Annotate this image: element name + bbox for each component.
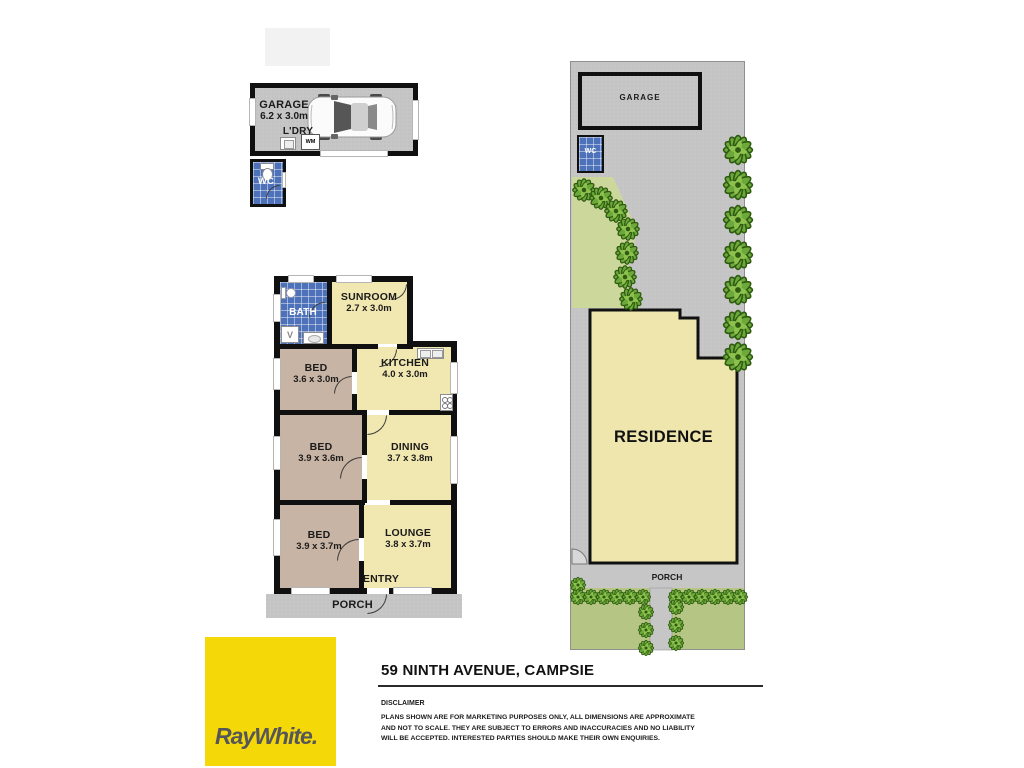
- wall: [352, 349, 357, 372]
- window: [273, 519, 281, 556]
- window: [393, 587, 432, 595]
- property-address: 59 NINTH AVENUE, CAMPSIE: [381, 662, 761, 679]
- porch-label: PORCH: [320, 599, 385, 611]
- sunroom-dims: 2.7 x 3.0m: [330, 303, 408, 314]
- wc-window-right: [282, 172, 286, 188]
- kitchen-name: KITCHEN: [360, 357, 450, 369]
- sunroom-name: SUNROOM: [330, 291, 408, 303]
- kitchen-label: KITCHEN 4.0 x 3.0m: [360, 357, 450, 380]
- laundry-tub-icon: [280, 137, 296, 150]
- wc-plan-label: WC: [251, 176, 281, 187]
- dining-dims: 3.7 x 3.8m: [370, 453, 450, 464]
- raywhite-logo: RayWhite.: [205, 637, 336, 766]
- wall: [390, 500, 451, 505]
- window: [291, 587, 330, 595]
- disclaimer-heading: DISCLAIMER: [381, 700, 581, 707]
- wall: [280, 344, 378, 349]
- site-porch-label: PORCH: [637, 572, 697, 582]
- site-wc-label: WC: [577, 148, 604, 155]
- wall: [280, 410, 367, 415]
- site-garage-label: GARAGE: [578, 93, 702, 102]
- garage-plan-dims: 6.2 x 3.0m: [250, 111, 318, 122]
- floorplan-page: WM GARAGE 6.2 x 3.0m L'DRY WC: [0, 0, 1024, 768]
- bed2-label: BED 3.9 x 3.6m: [284, 441, 358, 464]
- bed2-name: BED: [284, 441, 358, 453]
- garage-door-opening: [320, 150, 388, 157]
- dining-label: DINING 3.7 x 3.8m: [370, 441, 450, 464]
- window: [450, 436, 458, 484]
- wall: [407, 341, 457, 347]
- lounge-dims: 3.8 x 3.7m: [368, 539, 448, 550]
- wall: [359, 505, 364, 538]
- window: [450, 362, 458, 394]
- garage-plan-title: GARAGE: [252, 99, 316, 111]
- window: [336, 275, 372, 283]
- bath-toilet-bowl-icon: [286, 288, 296, 298]
- garage-window-right: [412, 100, 419, 140]
- faint-box: [265, 28, 330, 66]
- bath-sink-icon: [303, 332, 324, 344]
- wall: [280, 500, 365, 505]
- bed3-name: BED: [282, 529, 356, 541]
- raywhite-logo-text: RayWhite.: [215, 723, 317, 750]
- address-rule: [378, 685, 763, 687]
- wall: [397, 344, 413, 349]
- residence-label: RESIDENCE: [592, 428, 735, 447]
- bath-label: BATH: [281, 307, 325, 318]
- dining-name: DINING: [370, 441, 450, 453]
- lounge-name: LOUNGE: [368, 527, 448, 539]
- laundry-label: L'DRY: [278, 126, 318, 137]
- kitchen-dims: 4.0 x 3.0m: [360, 369, 450, 380]
- sunroom-label: SUNROOM 2.7 x 3.0m: [330, 291, 408, 314]
- window: [288, 275, 314, 283]
- lounge-label: LOUNGE 3.8 x 3.7m: [368, 527, 448, 550]
- bed1-label: BED 3.6 x 3.0m: [282, 362, 350, 385]
- shower-icon: V: [281, 326, 299, 343]
- window: [273, 294, 281, 322]
- wall: [352, 394, 357, 410]
- bed2-dims: 3.9 x 3.6m: [284, 453, 358, 464]
- bed3-label: BED 3.9 x 3.7m: [282, 529, 356, 552]
- bed1-name: BED: [282, 362, 350, 374]
- entry-label: ENTRY: [358, 573, 404, 585]
- window: [273, 436, 281, 470]
- disclaimer-text: PLANS SHOWN ARE FOR MARKETING PURPOSES O…: [381, 713, 699, 745]
- washing-machine-label: WM: [306, 139, 316, 145]
- window: [273, 358, 281, 390]
- bed1-dims: 3.6 x 3.0m: [282, 374, 350, 385]
- stove-icon: [440, 394, 453, 411]
- bed3-dims: 3.9 x 3.7m: [282, 541, 356, 552]
